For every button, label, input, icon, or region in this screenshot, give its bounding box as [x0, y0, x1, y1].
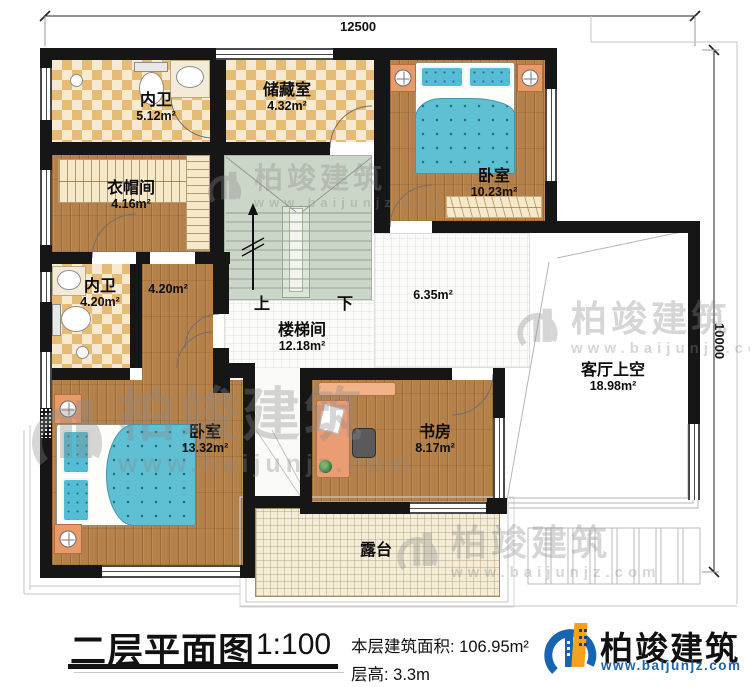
pillow: [62, 430, 90, 474]
room-label-cloakroom: 衣帽间 4.16m²: [107, 180, 155, 211]
window: [216, 48, 333, 60]
nightstand: [517, 64, 543, 92]
wall: [195, 252, 230, 264]
pillow: [420, 66, 464, 88]
dimension-width: 12500: [340, 19, 376, 34]
wall: [688, 233, 700, 424]
wall: [243, 363, 255, 570]
shower-drain: [70, 74, 83, 87]
wall: [130, 264, 142, 368]
lamp-icon: [60, 531, 77, 548]
area-label-corridor: 4.20m²: [148, 282, 188, 296]
room-label-storage: 储藏室 4.32m²: [263, 82, 311, 113]
bedroom1-rug: [446, 196, 542, 218]
window: [40, 170, 52, 245]
room-label-stairwell: 楼梯间 12.18m²: [278, 322, 326, 353]
wall: [40, 252, 92, 264]
wall: [486, 502, 507, 514]
brand-url: www.baijunjz.com: [601, 658, 742, 673]
wall: [333, 48, 557, 60]
area-label-hall: 6.35m²: [413, 288, 453, 302]
shower-drain: [76, 346, 89, 359]
wall: [493, 368, 505, 418]
blanket: [415, 98, 515, 174]
window: [545, 89, 557, 181]
toilet-tank: [134, 62, 168, 72]
window: [40, 272, 52, 302]
wall: [210, 60, 226, 142]
room-label-terrace: 露台: [360, 542, 392, 559]
wall-vent: [40, 408, 52, 438]
room-label-void: 客厅上空 18.98m²: [581, 362, 645, 393]
lamp-icon: [60, 401, 77, 418]
wall: [300, 502, 410, 514]
wall: [210, 155, 224, 252]
wall: [40, 368, 130, 380]
chair: [352, 428, 376, 458]
sink-basin: [176, 66, 204, 88]
stair-column: [289, 208, 303, 292]
pillow: [468, 66, 512, 88]
window: [40, 68, 52, 120]
plant: [319, 460, 332, 473]
toilet-bowl: [61, 306, 91, 332]
shelf: [318, 382, 396, 396]
brand-logo-icon: [543, 615, 597, 683]
sink-basin: [57, 270, 81, 290]
room-label-bath2: 内卫 4.20m²: [80, 278, 120, 309]
room-label-bath1: 内卫 5.12m²: [136, 92, 176, 123]
title-underline: [68, 664, 338, 669]
plan-scale: 1:100: [256, 628, 331, 662]
wall: [40, 142, 330, 155]
wall: [40, 565, 102, 578]
room-label-bedroom2: 卧室 13.32m²: [182, 424, 229, 455]
wall: [255, 496, 312, 508]
room-label-bedroom1: 卧室 10.23m²: [471, 168, 518, 199]
stair-down-label: 下: [337, 296, 353, 313]
dimension-height: 10000: [712, 323, 727, 359]
cloakroom-closet-right: [186, 155, 210, 251]
nightstand: [54, 524, 82, 554]
title-underline-shadow: [74, 672, 344, 673]
wall: [312, 368, 452, 380]
lamp-icon: [522, 70, 539, 87]
toilet-tank: [52, 304, 61, 336]
wall: [40, 438, 52, 578]
wall: [213, 363, 230, 393]
window: [102, 565, 240, 578]
window: [40, 352, 52, 408]
stair-up-label: 上: [254, 296, 270, 313]
floor-plan-canvas: 内卫 5.12m² 储藏室 4.32m² 卧室 10.23m² 衣帽间 4.16…: [0, 0, 750, 687]
room-label-study: 书房 8.17m²: [415, 424, 455, 455]
wall: [545, 48, 557, 89]
wall: [432, 221, 700, 233]
wall: [213, 264, 229, 314]
floor-height-line: 层高: 3.3m: [351, 661, 430, 685]
floor-area-line: 本层建筑面积: 106.95m²: [351, 633, 529, 657]
window: [493, 418, 505, 498]
pillow: [62, 478, 90, 522]
wall: [40, 48, 216, 60]
lamp-icon: [395, 70, 412, 87]
wall: [374, 60, 390, 233]
nightstand: [54, 394, 82, 424]
window: [688, 424, 700, 500]
wall: [40, 302, 52, 352]
wall: [136, 252, 150, 264]
window: [410, 502, 486, 514]
nightstand: [390, 64, 416, 92]
wall: [300, 368, 312, 514]
